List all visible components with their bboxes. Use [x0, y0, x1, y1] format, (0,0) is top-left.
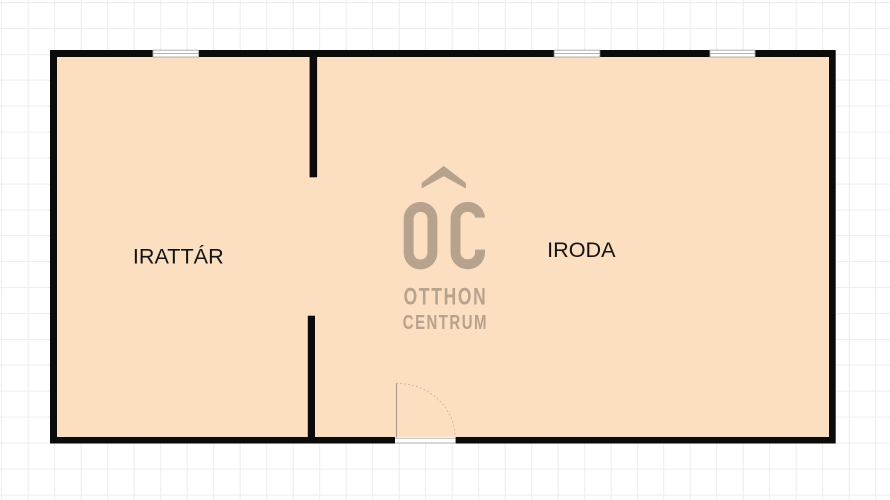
svg-text:CENTRUM: CENTRUM: [403, 311, 488, 334]
svg-text:OTTHON: OTTHON: [404, 284, 488, 310]
svg-text:IRATTÁR: IRATTÁR: [133, 244, 224, 269]
svg-text:IRODA: IRODA: [547, 237, 616, 262]
